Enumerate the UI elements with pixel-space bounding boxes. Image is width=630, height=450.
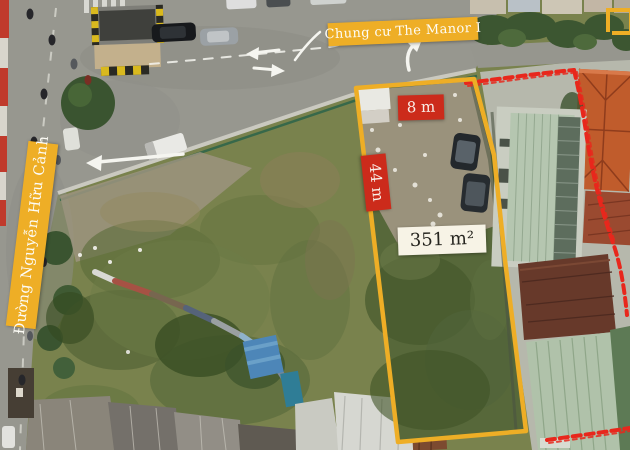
- plot-width-label: 8 m: [398, 94, 445, 120]
- aerial-photo-scene: [0, 0, 630, 450]
- plot-area-label: 351 m²: [398, 224, 487, 255]
- annotated-aerial-photo: Chung cư The Manor I Đường Nguyễn Hữu Cả…: [0, 0, 630, 450]
- right-buildings: [491, 69, 630, 450]
